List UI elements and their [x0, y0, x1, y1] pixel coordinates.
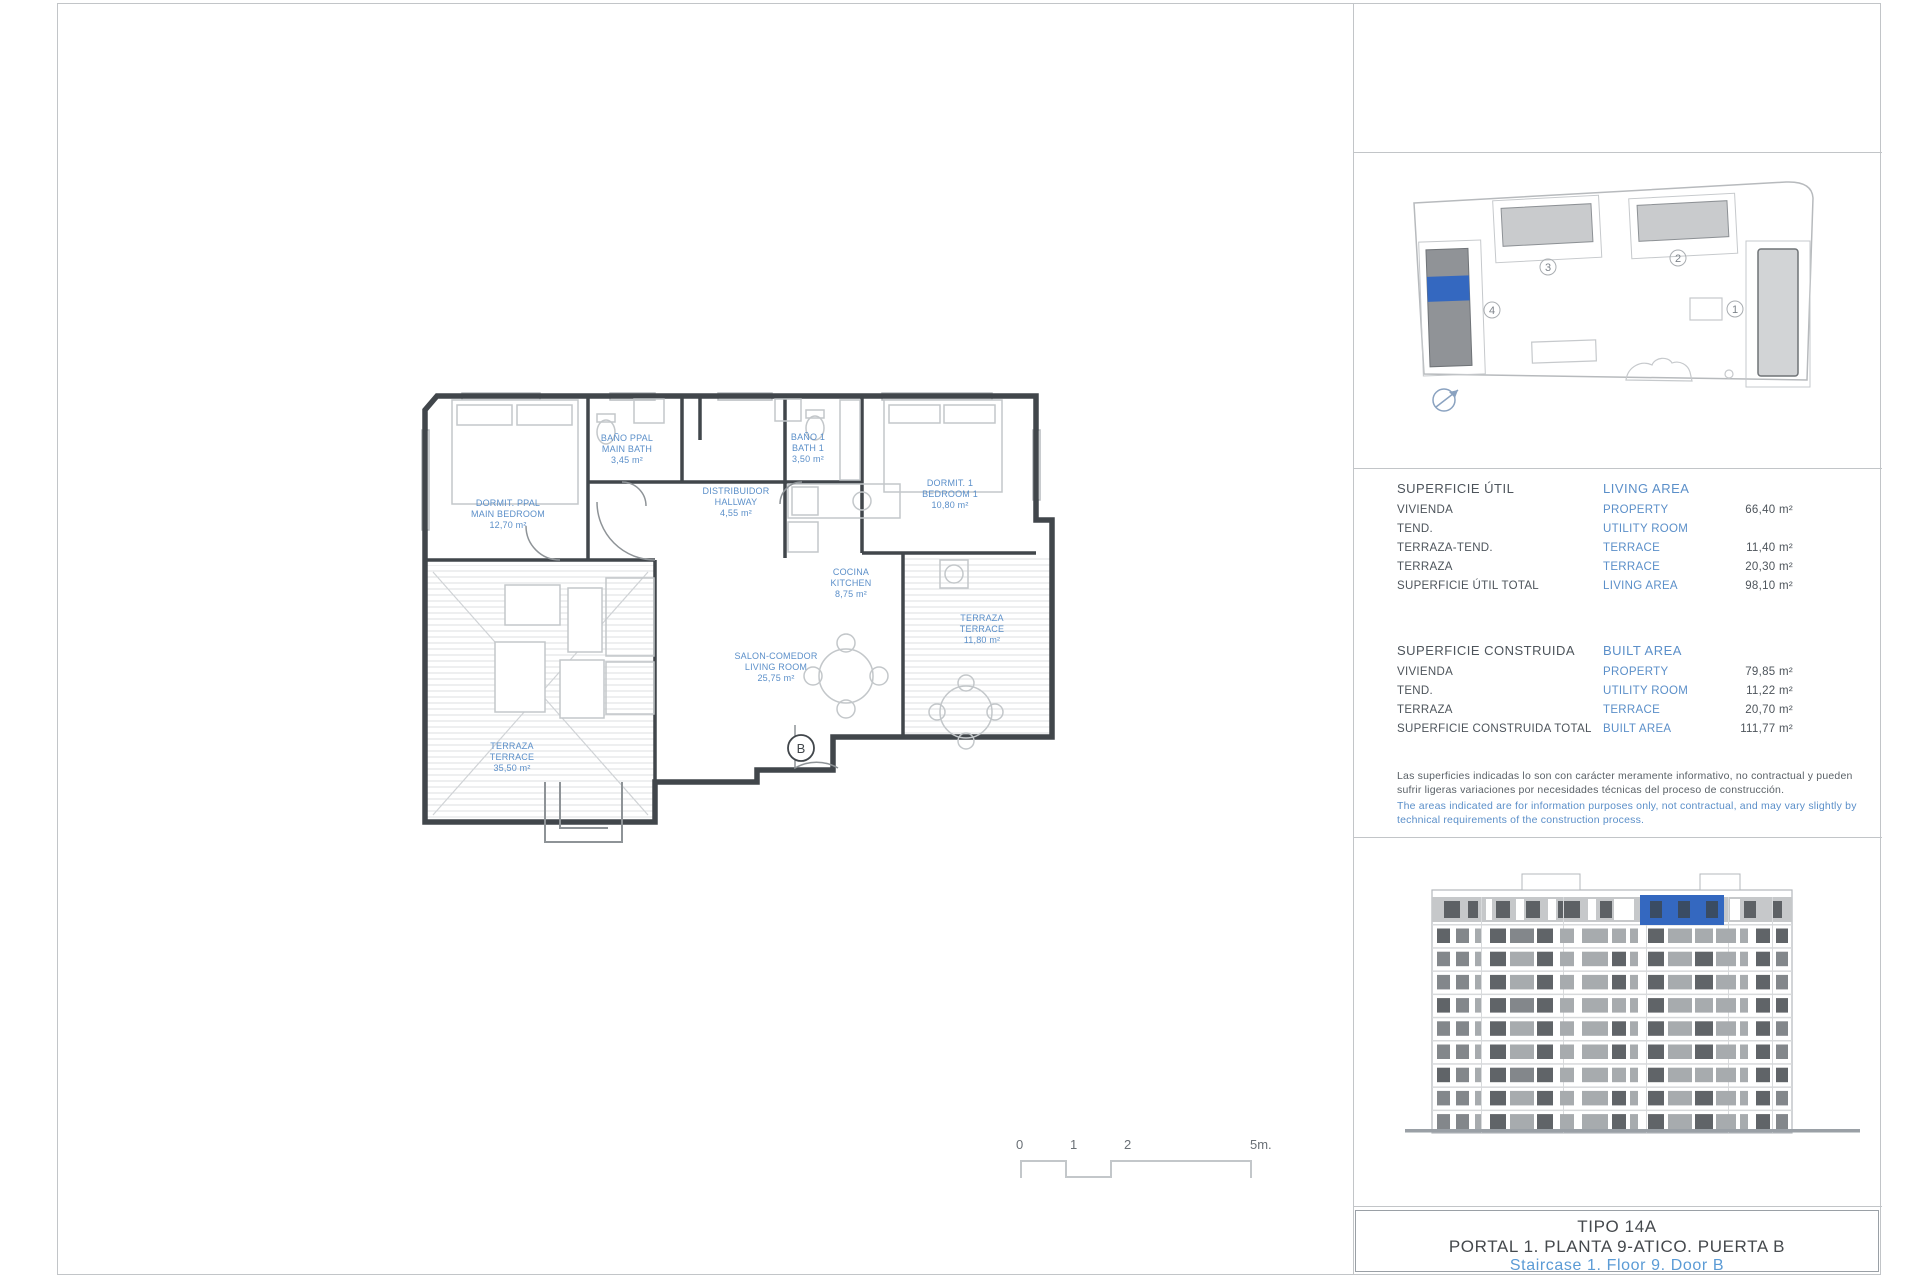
- table-row: TERRAZA TERRACE 20,30 m²: [1397, 561, 1793, 579]
- table-living-title-en: LIVING AREA: [1603, 481, 1689, 496]
- unit-location-es: PORTAL 1. PLANTA 9-ATICO. PUERTA B: [1356, 1237, 1878, 1257]
- highlight-windows: [1650, 901, 1718, 918]
- ground-line: [1405, 1129, 1860, 1133]
- table-living-title-es: SUPERFICIE ÚTIL: [1397, 481, 1514, 496]
- table-row: SUPERFICIE CONSTRUIDA TOTAL BUILT AREA 1…: [1397, 723, 1793, 741]
- unit-type-title: TIPO 14A: [1356, 1217, 1878, 1237]
- table-row: VIVIENDA PROPERTY 66,40 m²: [1397, 504, 1793, 522]
- table-row: SUPERFICIE ÚTIL TOTAL LIVING AREA 98,10 …: [1397, 580, 1793, 598]
- table-built-title-es: SUPERFICIE CONSTRUIDA: [1397, 643, 1575, 658]
- table-row: TERRAZA TERRACE 20,70 m²: [1397, 704, 1793, 722]
- title-block: TIPO 14A PORTAL 1. PLANTA 9-ATICO. PUERT…: [1355, 1210, 1879, 1272]
- table-built-title: SUPERFICIE CONSTRUIDA BUILT AREA: [1397, 643, 1793, 661]
- unit-location-en: Staircase 1. Floor 9. Door B: [1356, 1257, 1878, 1275]
- disclaimer: Las superficies indicadas lo son con car…: [1397, 770, 1859, 827]
- table-row: TERRAZA-TEND. TERRACE 11,40 m²: [1397, 542, 1793, 560]
- table-row: VIVIENDA PROPERTY 79,85 m²: [1397, 666, 1793, 684]
- table-built-title-en: BUILT AREA: [1603, 643, 1682, 658]
- elevation-drawing: [0, 0, 1920, 1280]
- table-living-title: SUPERFICIE ÚTIL LIVING AREA: [1397, 481, 1793, 499]
- plan-sheet: B DORMIT. PPALMAIN BEDROOM12,70 m² BAÑO …: [0, 0, 1920, 1280]
- table-row: TEND. UTILITY ROOM: [1397, 523, 1793, 541]
- disclaimer-en: The areas indicated are for information …: [1397, 800, 1859, 827]
- table-row: TEND. UTILITY ROOM 11,22 m²: [1397, 685, 1793, 703]
- disclaimer-es: Las superficies indicadas lo son con car…: [1397, 770, 1859, 797]
